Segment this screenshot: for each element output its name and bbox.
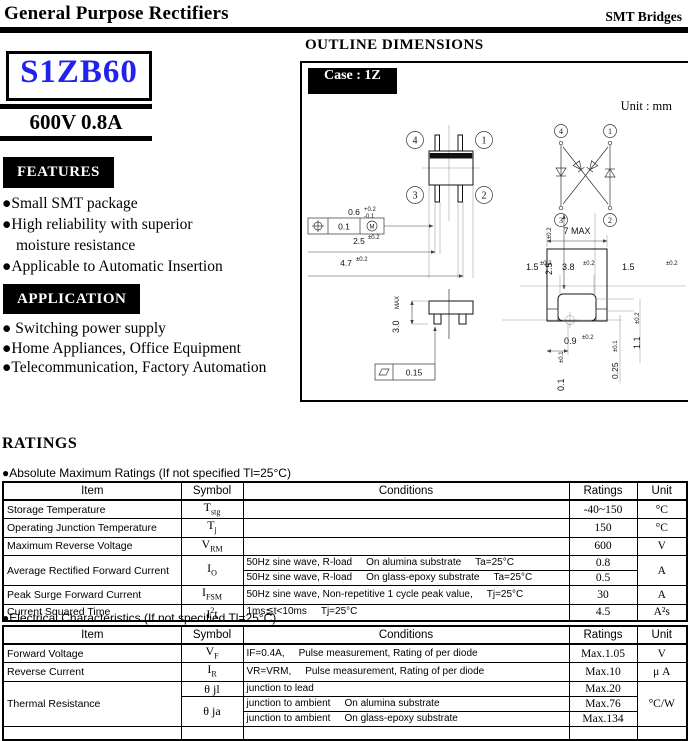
electrical-characteristics-label: ●Electrical Characteristics (If not spec… [2, 611, 276, 625]
outline-dimensions-heading: OUTLINE DIMENSIONS [305, 37, 484, 54]
dim-foot: 0.9 [564, 336, 577, 346]
conditions-cell: 50Hz sine wave, R-loadOn glass-epoxy sub… [243, 571, 569, 586]
unit-cell: A [637, 556, 687, 586]
pin-2-icon: 2 [608, 216, 612, 225]
features-heading: FEATURES [3, 157, 114, 188]
item-cell: Forward Voltage [3, 644, 181, 663]
conditions-cell: junction to ambientOn alumina substrate [243, 696, 569, 711]
application-heading: APPLICATION [3, 284, 140, 314]
dim-tol: ±0.1 [613, 340, 619, 352]
col-header-conditions: Conditions [243, 626, 569, 644]
symbol-cell: Tj [181, 519, 243, 537]
symbol-cell: θ ja [181, 696, 243, 726]
table-row: Maximum Reverse Voltage VRM 600 V [3, 537, 687, 555]
category-label: SMT Bridges [605, 9, 682, 25]
col-header-conditions: Conditions [243, 482, 569, 500]
rating-cell: 150 [569, 519, 637, 537]
dim-tol: ±0.2 [582, 335, 594, 341]
conditions-cell: 50Hz sine wave, Non-repetitive 1 cycle p… [243, 586, 569, 604]
dim-tol: ±0.2 [666, 261, 678, 267]
unit-cell: A [637, 586, 687, 604]
part-number: S1ZB60 [6, 51, 152, 101]
unit-cell: °C [637, 519, 687, 537]
table-header-row: Item Symbol Conditions Ratings Unit [3, 626, 687, 644]
pin-3-icon: 3 [559, 216, 563, 225]
symbol-cell: VF [181, 644, 243, 663]
dim-lead-left: 1.5 [526, 262, 539, 272]
table-row: Peak Surge Forward Current IFSM 50Hz sin… [3, 586, 687, 604]
flatness-symbol-icon [379, 369, 389, 375]
divider [0, 136, 152, 141]
dim-standoff: 0.1 [556, 378, 566, 391]
rating-cell: Max.76 [569, 696, 637, 711]
table-row: Operating Junction Temperature Tj 150 °C [3, 519, 687, 537]
rating-cell: Max.134 [569, 711, 637, 726]
symbol-cell: θ jl [181, 681, 243, 696]
table-row: Reverse Current IR VR=VRM,Pulse measurem… [3, 663, 687, 681]
dim-tol: ±0.2 [547, 227, 553, 239]
rating-cell: Max.20 [569, 681, 637, 696]
flatness-tolerance-frame: 0.15 [375, 364, 435, 380]
item-cell: Average Rectified Forward Current [3, 556, 181, 586]
list-item: ●Telecommunication, Factory Automation [2, 358, 312, 378]
electrical-characteristics-table: Item Symbol Conditions Ratings Unit Forw… [2, 625, 688, 741]
symbol-cell [181, 726, 243, 740]
list-item: ● Switching power supply [2, 319, 312, 339]
front-view: 7 MAX [520, 226, 686, 383]
item-cell: Peak Surge Forward Current [3, 586, 181, 604]
pin-4-icon: 4 [559, 127, 563, 136]
conditions-cell [243, 726, 569, 740]
divider [0, 104, 152, 109]
table-row: Forward Voltage VF IF=0.4A,Pulse measure… [3, 644, 687, 663]
dimension-labels-top-view: 0.6 +0.2 -0.1 2.5 ±0.2 4.7 ±0.2 2.5 ±0.2 [308, 207, 564, 289]
symbol-cell: Tstg [181, 500, 243, 519]
conditions-cell [243, 519, 569, 537]
absolute-maximum-ratings-table: Item Symbol Conditions Ratings Unit Stor… [2, 481, 688, 622]
col-header-symbol: Symbol [181, 626, 243, 644]
mmc-modifier: M [370, 225, 375, 231]
item-cell: Operating Junction Temperature [3, 519, 181, 537]
dim-lead-right: 1.5 [622, 262, 635, 272]
table-row: Thermal Resistance θ jl junction to lead… [3, 681, 687, 696]
dim-max-label: MAX [395, 296, 401, 309]
symbol-cell: IR [181, 663, 243, 681]
seating-plane: 0.1 ±0.1 [502, 312, 622, 391]
top-view: 4 1 3 2 [407, 125, 493, 221]
position-symbol-icon [312, 220, 324, 232]
col-header-symbol: Symbol [181, 482, 243, 500]
conditions-cell: junction to lead [243, 681, 569, 696]
dim-tol: ±0.2 [356, 257, 368, 263]
list-item: ●High reliability with superior moisture… [2, 214, 247, 256]
dim-body: 3.8 [562, 262, 575, 272]
dim-lead-width: 0.6 [348, 207, 360, 217]
table-row: Average Rectified Forward Current IO 50H… [3, 556, 687, 571]
dim-lead-pitch: 2.5 [353, 236, 365, 246]
table-header-row: Item Symbol Conditions Ratings Unit [3, 482, 687, 500]
conditions-cell: IF=0.4A,Pulse measurement, Rating of per… [243, 644, 569, 663]
unit-cell: μ A [637, 663, 687, 681]
rating-cell: Max.10 [569, 663, 637, 681]
datum-target-icon [562, 312, 578, 328]
table-row: Storage Temperature Tstg -40~150 °C [3, 500, 687, 519]
header-rule [0, 27, 688, 33]
side-view: MAX 3.0 [391, 289, 473, 339]
dim-body-width: 4.7 [340, 258, 352, 268]
pin-3-icon: 3 [413, 191, 418, 202]
rating-cell [569, 726, 637, 740]
dim-height: 3.0 [391, 320, 401, 333]
tolerance-value: 0.1 [338, 222, 350, 232]
list-item: ●Small SMT package [2, 193, 247, 214]
dim-tol: +0.2 [364, 207, 377, 213]
conditions-cell [243, 500, 569, 519]
item-cell: Thermal Resistance [3, 681, 181, 726]
rating-cell: 600 [569, 537, 637, 555]
symbol-cell: IO [181, 556, 243, 586]
col-header-unit: Unit [637, 482, 687, 500]
unit-cell: V [637, 537, 687, 555]
position-tolerance-frame: 0.1 M [308, 218, 384, 234]
dim-tol: ±0.2 [583, 261, 595, 267]
features-list: ●Small SMT package ●High reliability wit… [2, 193, 247, 277]
symbol-cell: VRM [181, 537, 243, 555]
col-header-item: Item [3, 482, 181, 500]
conditions-cell: 50Hz sine wave, R-loadOn alumina substra… [243, 556, 569, 571]
dim-tol: ±0.1 [559, 351, 565, 363]
abs-max-ratings-label: ●Absolute Maximum Ratings (If not specif… [2, 466, 291, 480]
rating-cell: -40~150 [569, 500, 637, 519]
conditions-cell [243, 537, 569, 555]
rating-cell: 0.8 [569, 556, 637, 571]
dim-lead-thickness: 0.25 [610, 362, 620, 379]
rating-cell: 4.5 [569, 604, 637, 621]
col-header-ratings: Ratings [569, 626, 637, 644]
pin-1-icon: 1 [482, 136, 487, 147]
rating-cell: Max.1.05 [569, 644, 637, 663]
list-item: ●Home Appliances, Office Equipment [2, 339, 312, 359]
pin-1-icon: 1 [608, 127, 612, 136]
list-item: ●Applicable to Automatic Insertion [2, 256, 247, 277]
unit-cell: V [637, 644, 687, 663]
dim-tol: ±0.2 [368, 235, 380, 241]
unit-cell: A²s [637, 604, 687, 621]
extension-lines [429, 185, 595, 295]
conditions-cell: junction to ambientOn glass-epoxy substr… [243, 711, 569, 726]
col-header-ratings: Ratings [569, 482, 637, 500]
item-cell [3, 726, 181, 740]
unit-cell: °C [637, 500, 687, 519]
col-header-item: Item [3, 626, 181, 644]
application-list: ● Switching power supply ●Home Appliance… [2, 319, 312, 378]
item-cell: Maximum Reverse Voltage [3, 537, 181, 555]
page-title: General Purpose Rectifiers [4, 3, 229, 25]
unit-cell: °C/W [637, 681, 687, 726]
flatness-value: 0.15 [406, 368, 423, 378]
symbol-cell: IFSM [181, 586, 243, 604]
dim-lead-height: 1.1 [632, 336, 642, 349]
bridge-schematic: 4 1 3 2 [555, 125, 617, 227]
dim-tol: ±0.2 [635, 312, 641, 324]
conditions-cell: 1ms≦t<10msTj=25°C [243, 604, 569, 621]
unit-cell [637, 726, 687, 740]
col-header-unit: Unit [637, 626, 687, 644]
pin-2-icon: 2 [482, 191, 487, 202]
dim-overall-width: 7 MAX [563, 226, 590, 236]
outline-drawing: 4 1 3 2 [302, 63, 688, 400]
rating-cell: 30 [569, 586, 637, 604]
conditions-cell: VR=VRM,Pulse measurement, Rating of per … [243, 663, 569, 681]
item-cell: Storage Temperature [3, 500, 181, 519]
table-row-cutoff [3, 726, 687, 740]
rating-cell: 0.5 [569, 571, 637, 586]
pin-4-icon: 4 [413, 136, 418, 147]
ratings-heading: RATINGS [2, 435, 77, 453]
item-cell: Reverse Current [3, 663, 181, 681]
outline-drawing-frame: Case : 1Z Unit : mm 4 1 3 2 [300, 61, 688, 402]
dim-tol: -0.1 [364, 214, 375, 220]
voltage-current-rating: 600V 0.8A [0, 110, 152, 135]
dim-tol: ±0.2 [540, 261, 552, 267]
